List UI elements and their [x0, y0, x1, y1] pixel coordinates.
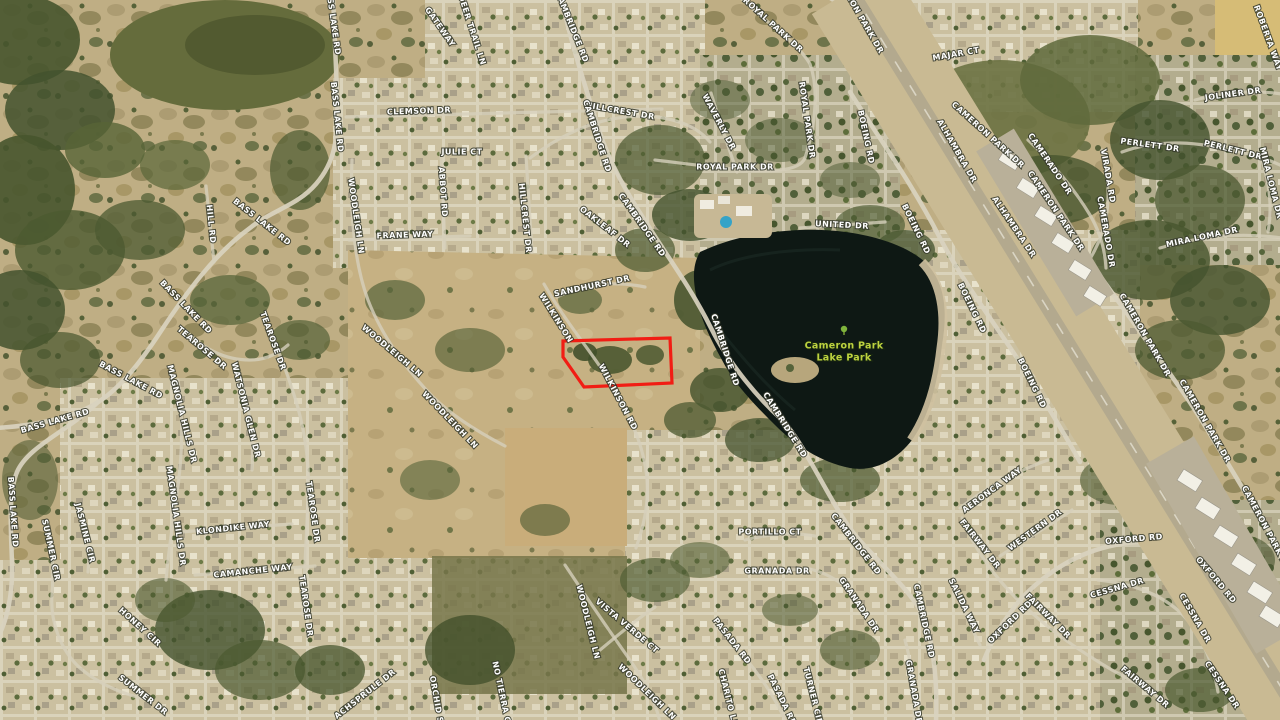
map-screenshot: BASS LAKE RDBASS LAKE RDBASS LAKE RDBASS… — [0, 0, 1280, 720]
lake-park-label-line1: Cameron Park — [805, 341, 884, 352]
satellite-map[interactable]: BASS LAKE RDBASS LAKE RDBASS LAKE RDBASS… — [0, 0, 1280, 720]
street-label: ROYAL PARK DR — [696, 163, 774, 172]
street-label: GRANADA DR — [744, 567, 809, 576]
street-label: JULIE CT — [440, 148, 482, 157]
lake-park-label-line2: Lake Park — [816, 353, 871, 364]
street-label: PORTILLO CT — [738, 528, 801, 537]
